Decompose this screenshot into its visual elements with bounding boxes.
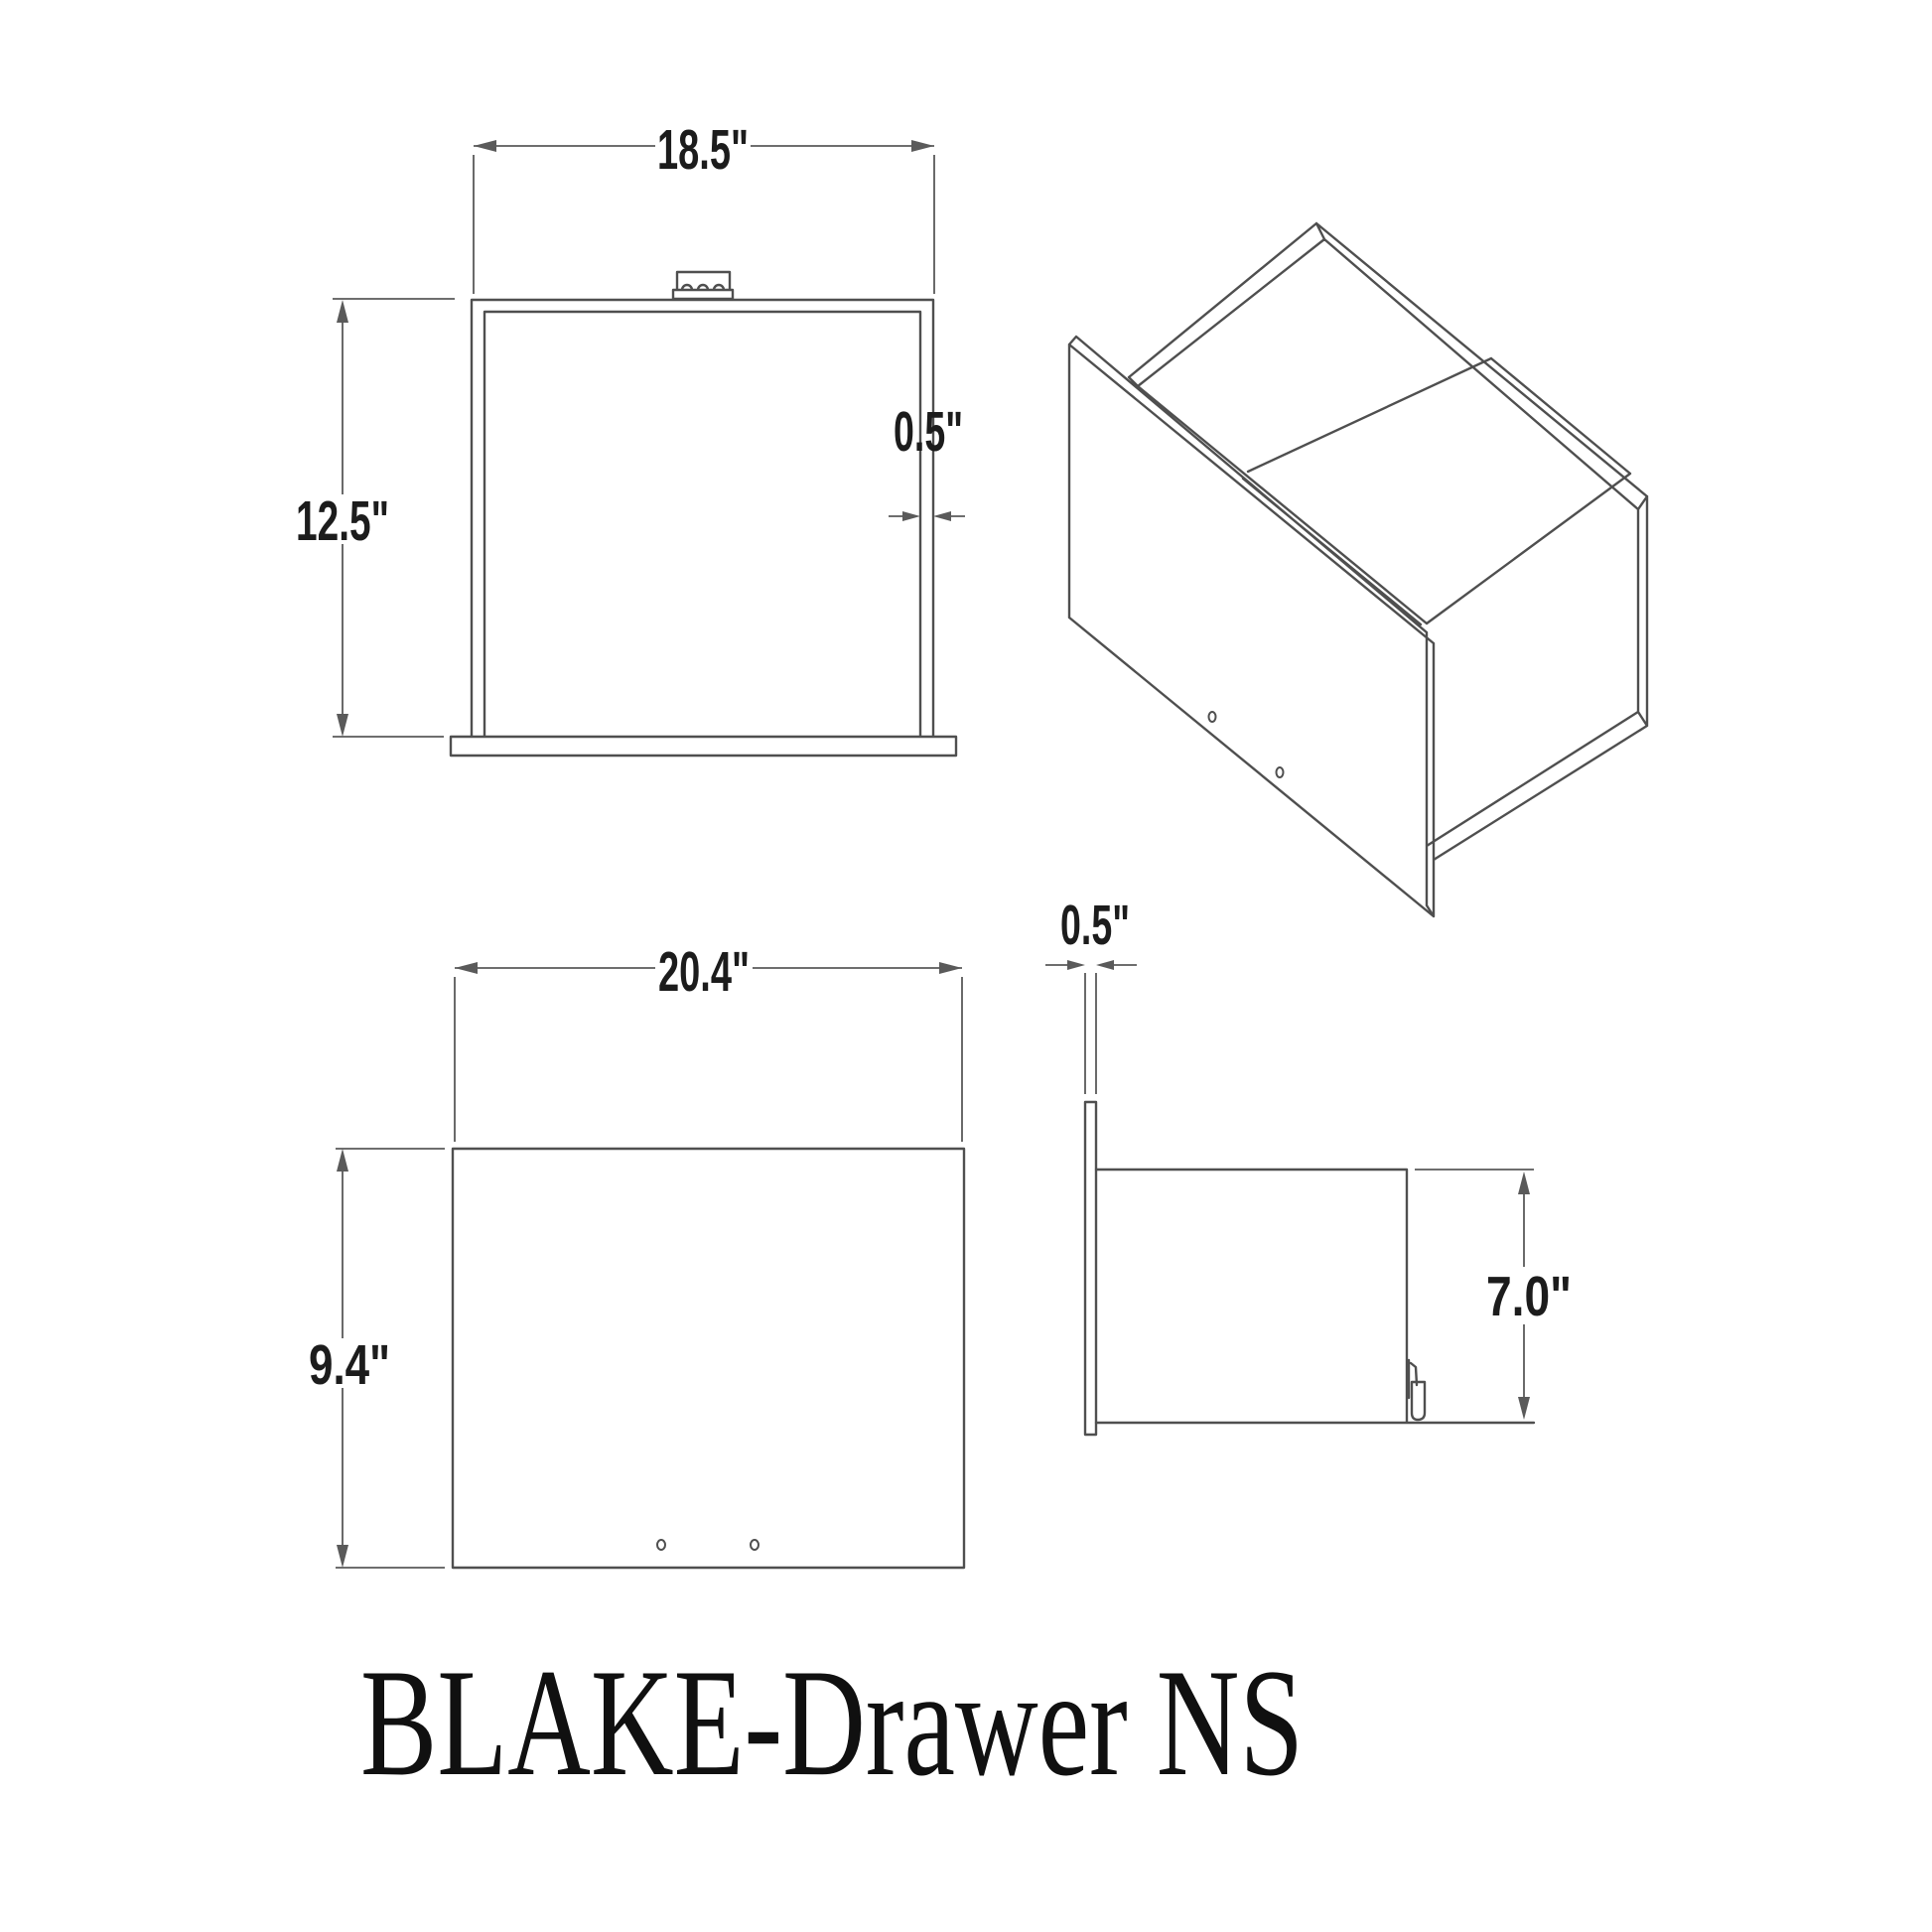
arrowhead-down-icon [1518,1397,1530,1420]
side-view-front-panel-edge [1085,1102,1096,1435]
arrowhead-up-icon [337,300,348,323]
front-thickness-label: 0.5" [894,400,963,464]
drawing-sheet: 18.5" 12.5" 0.5" 20.4" 9.4" [0,0,1932,1932]
panel-width-label: 20.4" [658,940,750,1004]
side-thickness-label: 0.5" [1060,894,1130,957]
thickness-arrow-right-icon [1096,960,1114,970]
front-view: 18.5" 12.5" 0.5" [296,118,965,756]
thickness-arrow-left-icon [1067,960,1085,970]
arrowhead-down-icon [337,1545,348,1568]
isometric-drawer-outline [1069,223,1647,916]
screw-hole [1209,712,1216,722]
thickness-arrow-left-icon [902,511,920,521]
side-thickness-extension-lines [1085,973,1096,1094]
mount-bracket [673,272,733,299]
screw-hole [1277,767,1284,777]
arrowhead-up-icon [337,1149,348,1172]
front-panel-outline [453,1149,964,1568]
front-height-label: 12.5" [296,489,389,553]
front-view-outline [451,300,956,756]
side-view-side-panel [1096,1170,1534,1423]
arrowhead-right-icon [911,140,934,152]
arrowhead-left-icon [474,140,496,152]
side-height-label: 7.0" [1486,1265,1572,1328]
thickness-arrow-right-icon [933,511,951,521]
slide-latch-bracket [1409,1360,1425,1420]
front-width-label: 18.5" [657,118,749,182]
panel-height-label: 9.4" [309,1333,390,1397]
arrowhead-down-icon [337,714,348,737]
isometric-view [1069,223,1647,916]
title-block: BLAKE-Drawer NS [360,1637,1304,1808]
arrowhead-left-icon [455,962,478,974]
screw-hole [751,1540,759,1550]
side-view: 0.5" 7.0" [1045,894,1572,1435]
screw-hole [657,1540,665,1550]
drawing-title: BLAKE-Drawer NS [360,1637,1304,1808]
front-panel-view: 20.4" 9.4" [309,940,964,1568]
arrowhead-up-icon [1518,1172,1530,1194]
arrowhead-right-icon [939,962,962,974]
technical-drawing-canvas: 18.5" 12.5" 0.5" 20.4" 9.4" [0,0,1932,1932]
